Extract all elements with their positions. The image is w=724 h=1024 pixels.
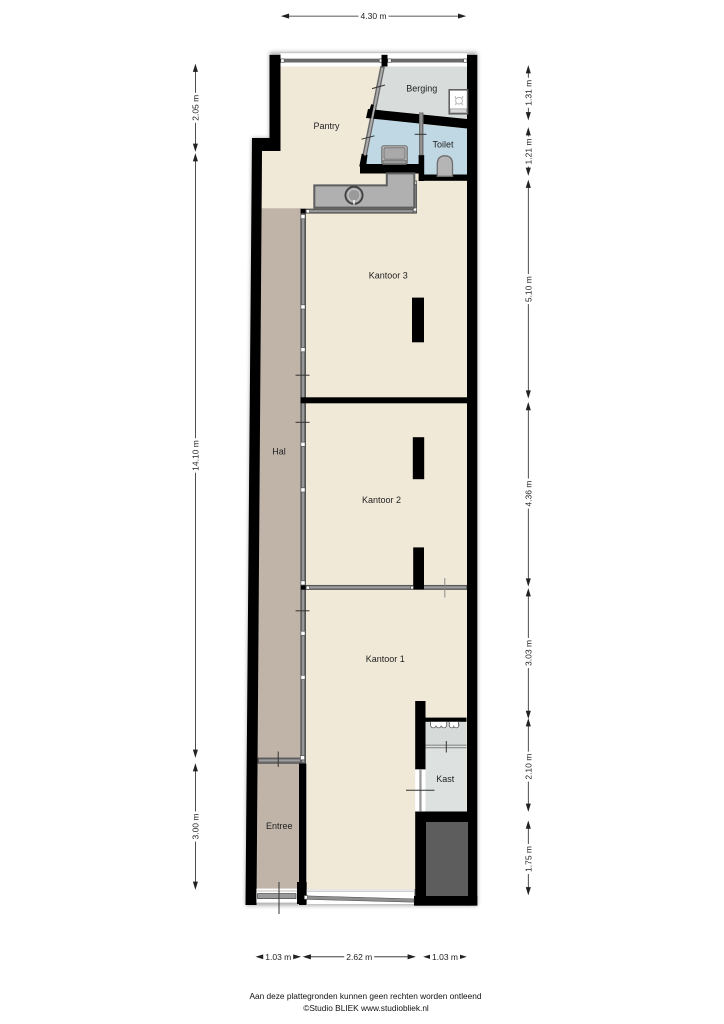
svg-text:Kantoor 3: Kantoor 3 — [369, 271, 408, 281]
svg-text:Entree: Entree — [266, 821, 293, 831]
svg-text:Kantoor 2: Kantoor 2 — [362, 495, 401, 505]
svg-text:Hal: Hal — [272, 447, 286, 457]
svg-text:2.10 m: 2.10 m — [523, 754, 533, 780]
svg-text:14.10 m: 14.10 m — [190, 440, 200, 471]
svg-text:1.21 m: 1.21 m — [523, 139, 533, 165]
svg-text:Kantoor 1: Kantoor 1 — [366, 654, 405, 664]
svg-text:1.31 m: 1.31 m — [523, 80, 533, 106]
svg-text:5.10 m: 5.10 m — [523, 276, 533, 302]
svg-text:3.00 m: 3.00 m — [190, 814, 200, 840]
svg-text:4.30 m: 4.30 m — [361, 11, 387, 21]
svg-text:Kast: Kast — [436, 774, 455, 784]
svg-text:2.05 m: 2.05 m — [190, 95, 200, 121]
svg-text:4.36 m: 4.36 m — [523, 481, 533, 507]
svg-text:1.75 m: 1.75 m — [523, 846, 533, 872]
svg-text:Berging: Berging — [406, 84, 437, 94]
svg-text:1.03 m: 1.03 m — [432, 952, 458, 962]
svg-text:1.03 m: 1.03 m — [265, 952, 291, 962]
svg-text:3.03 m: 3.03 m — [523, 640, 533, 666]
svg-text:Pantry: Pantry — [313, 121, 340, 131]
svg-text:©Studio BLIEK www.studiobliek.: ©Studio BLIEK www.studiobliek.nl — [303, 1003, 429, 1013]
svg-text:Toilet: Toilet — [432, 140, 454, 150]
svg-text:2.62 m: 2.62 m — [346, 952, 372, 962]
svg-text:Aan deze plattegronden kunnen: Aan deze plattegronden kunnen geen recht… — [249, 991, 481, 1001]
